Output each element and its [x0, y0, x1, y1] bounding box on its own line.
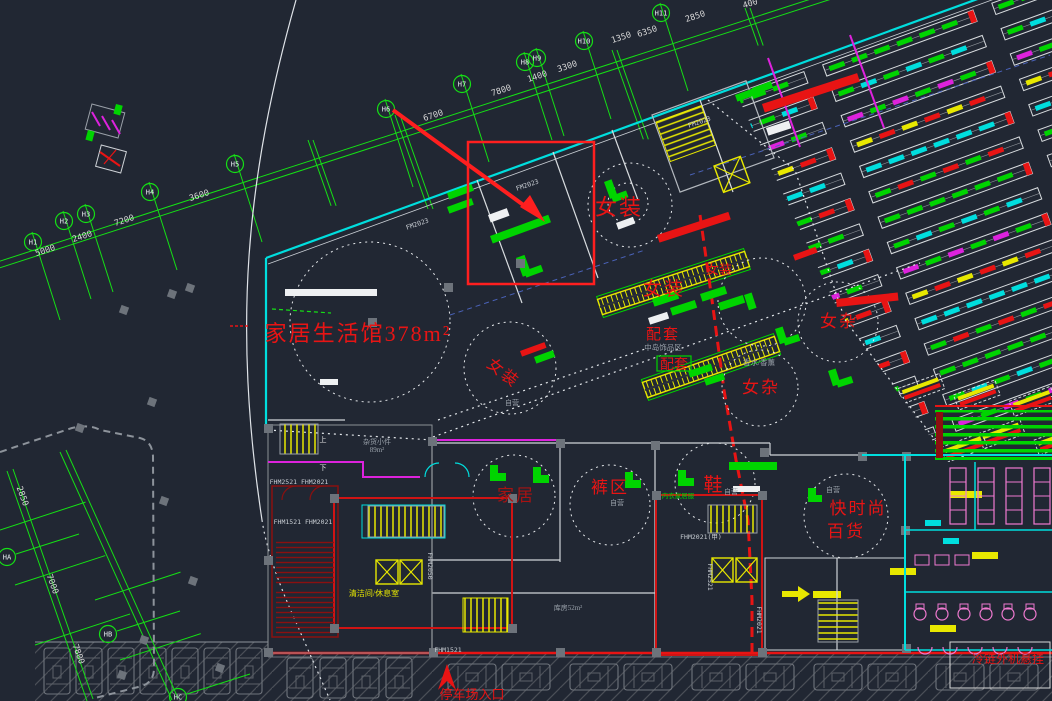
door-code-label: FHM2021 — [755, 606, 763, 633]
area-label: 女装 — [643, 278, 685, 300]
grid-bubble-label: H10 — [578, 38, 591, 46]
area-label: 裤区 — [591, 478, 629, 497]
area-label: 百货 — [827, 522, 865, 541]
grid-bubble-label: H7 — [458, 81, 466, 89]
grid-bubble-label: H11 — [655, 10, 668, 18]
area-label: 女杂 — [820, 312, 858, 331]
grid-bubble-label: HB — [104, 631, 112, 639]
area-label: 女装 — [595, 195, 643, 220]
grid-bubble-label: H5 — [231, 161, 239, 169]
grid-bubble-label: H9 — [533, 55, 541, 63]
grid-bubble-label: H3 — [82, 211, 90, 219]
area-label: 库房52m² — [554, 603, 583, 612]
area-label: 鞋 — [703, 474, 724, 496]
area-label: 自营 — [610, 498, 624, 507]
area-label: 下 — [320, 464, 327, 472]
area-label: 中岛饰品区 — [644, 342, 682, 352]
grid-bubble-label: H8 — [521, 59, 529, 67]
door-code-label: FHM1521 FHM2021 — [274, 518, 333, 526]
area-label: 香水/香薰 — [743, 357, 776, 367]
area-label: 上 — [320, 435, 327, 444]
area-label: 内衣家居服 — [662, 491, 695, 500]
door-code-label: FHM2521 FHM2021 — [270, 478, 329, 486]
area-label: 清洁间/休息室 — [349, 588, 399, 598]
door-code-label: FHM2521 — [706, 563, 714, 590]
door-code-label: FHM2021(甲) — [680, 533, 722, 541]
area-label: 自营 — [505, 398, 519, 407]
grid-bubble-label: H6 — [382, 106, 390, 114]
area-label: 自营 — [724, 487, 738, 496]
area-label: 自营 — [826, 485, 840, 494]
door-code-label: FHM1521 — [434, 646, 461, 654]
grid-bubble-label: HA — [3, 554, 12, 562]
area-label: 快时尚 — [830, 499, 887, 518]
area-label: 冷链外机悬挂 — [972, 651, 1044, 666]
area-label: 配套 — [660, 357, 688, 373]
floorplan-drawing: H1H2H3H4H5H6H7H8H9H10H11HAHBHC5000240072… — [0, 0, 1052, 701]
area-label: 配套 — [646, 326, 680, 343]
cad-canvas[interactable]: H1H2H3H4H5H6H7H8H9H10H11HAHBHC5000240072… — [0, 0, 1052, 701]
area-label: 家居 — [497, 486, 535, 505]
grid-bubble-label: H4 — [146, 189, 154, 197]
area-label: 女装 — [706, 262, 732, 277]
area-label: 停车场入口 — [439, 687, 504, 701]
area-label: 89m² — [370, 446, 385, 454]
area-label: 家居生活馆378m² — [265, 321, 452, 346]
grid-bubble-label: H2 — [60, 218, 68, 226]
door-code-label: FHM2050 — [426, 552, 434, 579]
grid-bubble-label: HC — [174, 694, 182, 701]
area-label: 杂货小件 — [363, 437, 391, 446]
area-label: 女杂 — [742, 378, 780, 397]
grid-bubble-label: H1 — [29, 239, 37, 247]
